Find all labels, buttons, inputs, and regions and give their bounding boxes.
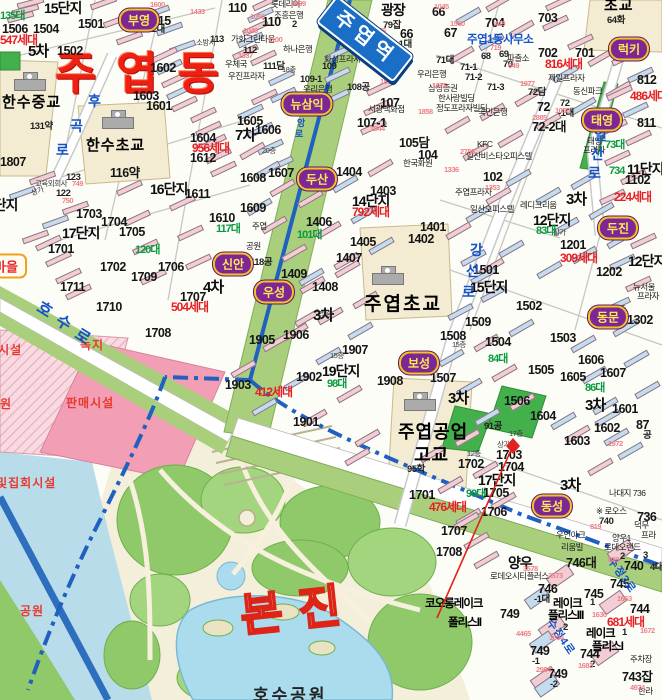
complex-badge: 우성	[254, 281, 294, 304]
complex-badge: 동문	[588, 306, 628, 329]
village-badge: 마을	[0, 254, 27, 279]
complex-badge: 뉴삼익	[281, 93, 332, 116]
complex-badge: 보성	[399, 352, 439, 375]
complex-badge: 두진	[598, 217, 638, 240]
complex-badge: 태영	[582, 109, 622, 132]
complex-badge: 부영	[119, 9, 159, 32]
complex-badge: 두산	[297, 168, 337, 191]
complex-badge: 동성	[532, 495, 572, 518]
complex-badge: 신안	[213, 253, 253, 276]
complex-badge: 럭키	[609, 38, 649, 61]
map-root: 주엽동15단지135대150615041501547세대115-2내5차1502…	[0, 0, 662, 700]
badges-layer: 부영뉴삼익두산신안우성보성두진동문동성태영럭키마을	[0, 0, 662, 700]
